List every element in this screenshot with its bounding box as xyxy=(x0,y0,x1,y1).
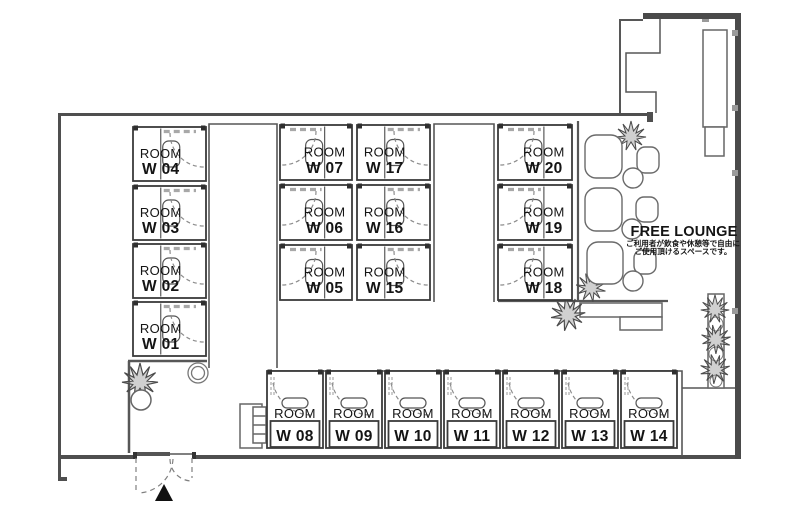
room-W16: ROOMW 16 xyxy=(357,184,430,241)
room-word-label: ROOM xyxy=(140,321,182,336)
round-table-inner xyxy=(192,367,205,380)
coffee-table xyxy=(623,168,643,188)
room-word-label: ROOM xyxy=(392,406,434,421)
room-W03: ROOMW 03 xyxy=(133,185,206,241)
armchair xyxy=(636,197,658,222)
room-number-label: W 14 xyxy=(630,428,667,445)
room-number-label: W 07 xyxy=(306,160,343,177)
room-word-label: ROOM xyxy=(364,205,406,220)
room-W04: ROOMW 04 xyxy=(133,126,206,182)
room-word-label: ROOM xyxy=(304,145,346,160)
wall-kitchen-boundary xyxy=(620,20,643,113)
room-word-label: ROOM xyxy=(510,406,552,421)
round-table xyxy=(188,363,208,383)
room-W13: ROOMW 13 xyxy=(562,370,618,449)
wall-bottom-right xyxy=(192,455,737,459)
room-word-label: ROOM xyxy=(304,265,346,280)
room-W18: ROOMW 18 xyxy=(498,244,572,301)
sofa xyxy=(587,242,623,284)
room-W10: ROOMW 10 xyxy=(385,370,441,449)
planter-right xyxy=(697,294,736,388)
room-word-label: ROOM xyxy=(569,406,611,421)
room-W02: ROOMW 02 xyxy=(133,243,206,299)
room-number-label: W 06 xyxy=(306,220,343,237)
room-word-label: ROOM xyxy=(140,205,182,220)
wall-tick xyxy=(732,30,738,36)
wall-top-main xyxy=(58,113,653,116)
room-word-label: ROOM xyxy=(304,205,346,220)
room-W11: ROOMW 11 xyxy=(444,370,500,449)
kitchen-counters xyxy=(703,30,727,156)
lounge-furniture xyxy=(585,135,659,291)
room-W15: ROOMW 15 xyxy=(357,244,430,301)
wall-cap-lounge xyxy=(647,112,653,122)
counter-small xyxy=(705,127,724,156)
room-number-label: W 02 xyxy=(142,278,179,295)
lounge-side-counter xyxy=(580,303,662,330)
room-number-label: W 09 xyxy=(335,428,372,445)
room-number-label: W 19 xyxy=(525,220,562,237)
locker-cabinet xyxy=(240,404,266,448)
room-word-label: ROOM xyxy=(628,406,670,421)
room-W12: ROOMW 12 xyxy=(503,370,559,449)
room-word-label: ROOM xyxy=(451,406,493,421)
wall-tick xyxy=(732,105,738,111)
room-number-label: W 20 xyxy=(525,160,562,177)
room-word-label: ROOM xyxy=(364,145,406,160)
room-number-label: W 05 xyxy=(306,280,343,297)
entrance-jamb xyxy=(133,452,137,459)
room-W07: ROOMW 07 xyxy=(280,124,352,181)
wall-tick xyxy=(732,308,738,314)
room-number-label: W 04 xyxy=(142,161,179,178)
room-word-label: ROOM xyxy=(333,406,375,421)
counter-tall xyxy=(703,30,727,127)
room-word-label: ROOM xyxy=(274,406,316,421)
room-W05: ROOMW 05 xyxy=(280,244,352,301)
wall-left-foot xyxy=(58,477,67,481)
corridor-right-walls xyxy=(434,124,494,302)
room-word-label: ROOM xyxy=(523,265,565,280)
room-number-label: W 01 xyxy=(142,336,179,353)
entrance-threshold xyxy=(137,452,170,456)
room-number-label: W 13 xyxy=(571,428,608,445)
entrance-threshold xyxy=(170,453,192,455)
room-number-label: W 16 xyxy=(366,220,403,237)
bench-upper xyxy=(580,303,662,317)
coffee-table xyxy=(623,271,643,291)
wall-kitchen-step xyxy=(626,19,660,113)
armchair xyxy=(637,147,659,173)
corridor-left-walls xyxy=(209,124,277,368)
room-W19: ROOMW 19 xyxy=(498,184,572,241)
room-W09: ROOMW 09 xyxy=(326,370,382,449)
wall-tick xyxy=(702,19,709,22)
plant-pot-large xyxy=(131,390,151,410)
room-W14: ROOMW 14 xyxy=(621,370,677,449)
room-W17: ROOMW 17 xyxy=(357,124,430,181)
room-number-label: W 03 xyxy=(142,220,179,237)
wall-tick xyxy=(732,170,738,176)
room-word-label: ROOM xyxy=(140,146,182,161)
room-word-label: ROOM xyxy=(364,265,406,280)
room-word-label: ROOM xyxy=(523,205,565,220)
sofa xyxy=(585,135,622,178)
free-lounge-label: FREE LOUNGE xyxy=(631,224,738,240)
floorplan-svg: ROOMW 01ROOMW 02ROOMW 03ROOMW 04ROOMW 05… xyxy=(0,0,800,506)
wall-left xyxy=(58,113,61,480)
room-number-label: W 18 xyxy=(525,280,562,297)
floorplan-canvas: ROOMW 01ROOMW 02ROOMW 03ROOMW 04ROOMW 05… xyxy=(0,0,800,506)
room-word-label: ROOM xyxy=(523,145,565,160)
room-W08: ROOMW 08 xyxy=(267,370,323,449)
room-number-label: W 12 xyxy=(512,428,549,445)
room-number-label: W 08 xyxy=(276,428,313,445)
room-W06: ROOMW 06 xyxy=(280,184,352,241)
room-number-label: W 15 xyxy=(366,280,403,297)
bench-lower xyxy=(620,317,662,330)
sofa xyxy=(585,188,622,231)
room-number-label: W 10 xyxy=(394,428,431,445)
room-number-label: W 17 xyxy=(366,160,403,177)
room-W20: ROOMW 20 xyxy=(498,124,572,181)
entrance xyxy=(133,452,196,501)
room-W01: ROOMW 01 xyxy=(133,301,206,357)
entrance-triangle-icon xyxy=(155,484,173,501)
wall-bottom-left xyxy=(61,455,137,459)
free-lounge-note-line2: ご使用頂けるスペースです。 xyxy=(634,246,731,256)
room-word-label: ROOM xyxy=(140,263,182,278)
room-number-label: W 11 xyxy=(454,428,491,445)
entrance-door-arc xyxy=(139,459,173,493)
entrance-jamb xyxy=(192,452,196,459)
wall-top-thick xyxy=(643,13,741,19)
